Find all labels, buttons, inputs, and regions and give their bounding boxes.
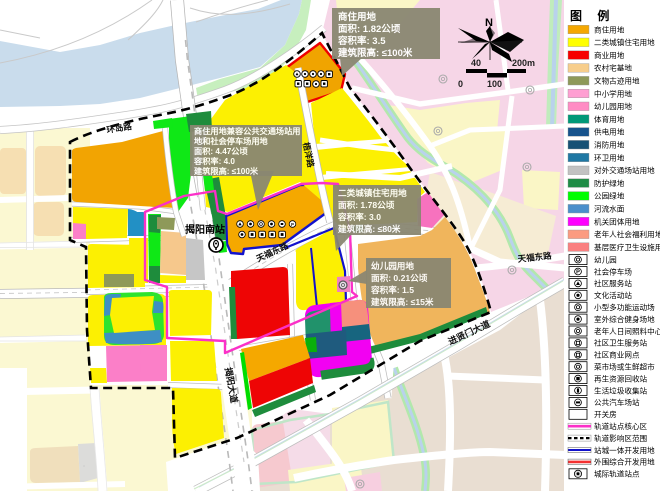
- svg-text:P: P: [291, 222, 294, 227]
- svg-text:揭阳南站: 揭阳南站: [185, 223, 225, 236]
- svg-text:消防用地: 消防用地: [594, 140, 625, 150]
- svg-text:室外综合健身场地: 室外综合健身场地: [594, 314, 655, 324]
- svg-text:建筑限高: ≤100米: 建筑限高: ≤100米: [337, 47, 413, 59]
- svg-text:幼儿园用地: 幼儿园用地: [594, 101, 632, 111]
- svg-text:环卫用地: 环卫用地: [594, 152, 625, 162]
- svg-text:容积率: 1.5: 容积率: 1.5: [370, 284, 414, 295]
- svg-text:社区商业网点: 社区商业网点: [594, 350, 640, 360]
- svg-text:二类城镇住宅用地: 二类城镇住宅用地: [594, 37, 655, 47]
- svg-text:面积: 4.47公顷: 面积: 4.47公顷: [194, 146, 248, 156]
- svg-text:N: N: [485, 17, 493, 29]
- svg-text:幼儿园: 幼儿园: [594, 254, 617, 264]
- svg-text:农村宅基地: 农村宅基地: [594, 63, 632, 73]
- svg-text:容积率: 3.0: 容积率: 3.0: [337, 211, 381, 222]
- svg-text:二类城镇住宅用地: 二类城镇住宅用地: [338, 187, 407, 198]
- svg-text:商住用地: 商住用地: [594, 24, 625, 34]
- svg-text:面积: 0.21公顷: 面积: 0.21公顷: [371, 272, 428, 283]
- svg-text:文物古迹用地: 文物古迹用地: [594, 76, 640, 86]
- svg-text:城际轨道站点: 城际轨道站点: [594, 469, 640, 479]
- svg-text:40: 40: [471, 58, 481, 68]
- svg-text:商住用地: 商住用地: [338, 11, 377, 23]
- svg-text:200m: 200m: [512, 58, 535, 68]
- svg-text:面积: 1.78公顷: 面积: 1.78公顷: [338, 199, 395, 210]
- svg-text:商住用地兼容公共交通场站用: 商住用地兼容公共交通场站用: [194, 126, 300, 136]
- svg-text:面积: 1.82公顷: 面积: 1.82公顷: [338, 23, 401, 35]
- svg-text:社区卫生服务站: 社区卫生服务站: [594, 338, 648, 348]
- svg-text:外围综合开发用地: 外围综合开发用地: [594, 457, 655, 467]
- svg-text:河流水面: 河流水面: [594, 204, 625, 214]
- svg-text:0: 0: [458, 79, 463, 89]
- svg-text:老年人日间照料中心: 老年人日间照料中心: [594, 326, 660, 336]
- svg-text:图 例: 图 例: [570, 8, 615, 23]
- svg-text:再生资源回收站: 再生资源回收站: [594, 373, 648, 383]
- svg-text:容积率: 4.0: 容积率: 4.0: [193, 156, 235, 166]
- svg-text:公园绿地: 公园绿地: [594, 191, 625, 201]
- svg-text:对外交通场站用地: 对外交通场站用地: [594, 165, 655, 175]
- svg-text:站城一体开发用地: 站城一体开发用地: [594, 445, 655, 455]
- svg-text:地和社会停车场用地: 地和社会停车场用地: [194, 136, 269, 146]
- svg-text:商业用地: 商业用地: [594, 50, 625, 60]
- svg-text:菜市场或生鲜超市: 菜市场或生鲜超市: [594, 362, 655, 372]
- svg-text:基层医疗卫生设施用地: 基层医疗卫生设施用地: [594, 242, 660, 252]
- svg-text:体育用地: 体育用地: [594, 114, 625, 124]
- svg-text:轨道影响区范围: 轨道影响区范围: [594, 433, 647, 443]
- svg-text:小型多功能运动场: 小型多功能运动场: [594, 302, 655, 312]
- svg-text:生活垃圾收集站: 生活垃圾收集站: [594, 385, 648, 395]
- svg-text:轨道站点核心区: 轨道站点核心区: [594, 421, 648, 431]
- svg-text:建筑限高: ≤100米: 建筑限高: ≤100米: [194, 166, 259, 176]
- svg-text:开关房: 开关房: [594, 409, 617, 419]
- svg-text:社会停车场: 社会停车场: [594, 266, 632, 276]
- svg-text:文化活动站: 文化活动站: [594, 290, 632, 300]
- svg-text:P: P: [576, 270, 580, 276]
- svg-text:建筑限高: ≤80米: 建筑限高: ≤80米: [337, 223, 401, 234]
- svg-text:老年人社会福利用地: 老年人社会福利用地: [594, 229, 660, 239]
- svg-text:防护绿地: 防护绿地: [594, 178, 625, 188]
- svg-text:社区服务站: 社区服务站: [594, 278, 632, 288]
- svg-text:幼儿园用地: 幼儿园用地: [371, 260, 414, 271]
- svg-text:供电用地: 供电用地: [594, 127, 625, 137]
- svg-text:100: 100: [487, 79, 502, 89]
- svg-text:容积率: 3.5: 容积率: 3.5: [337, 35, 386, 47]
- svg-text:中小学用地: 中小学用地: [594, 88, 632, 98]
- svg-text:公共汽车场站: 公共汽车场站: [594, 397, 640, 407]
- svg-text:建筑限高: ≤15米: 建筑限高: ≤15米: [370, 296, 434, 307]
- svg-text:机关团体用地: 机关团体用地: [594, 216, 640, 226]
